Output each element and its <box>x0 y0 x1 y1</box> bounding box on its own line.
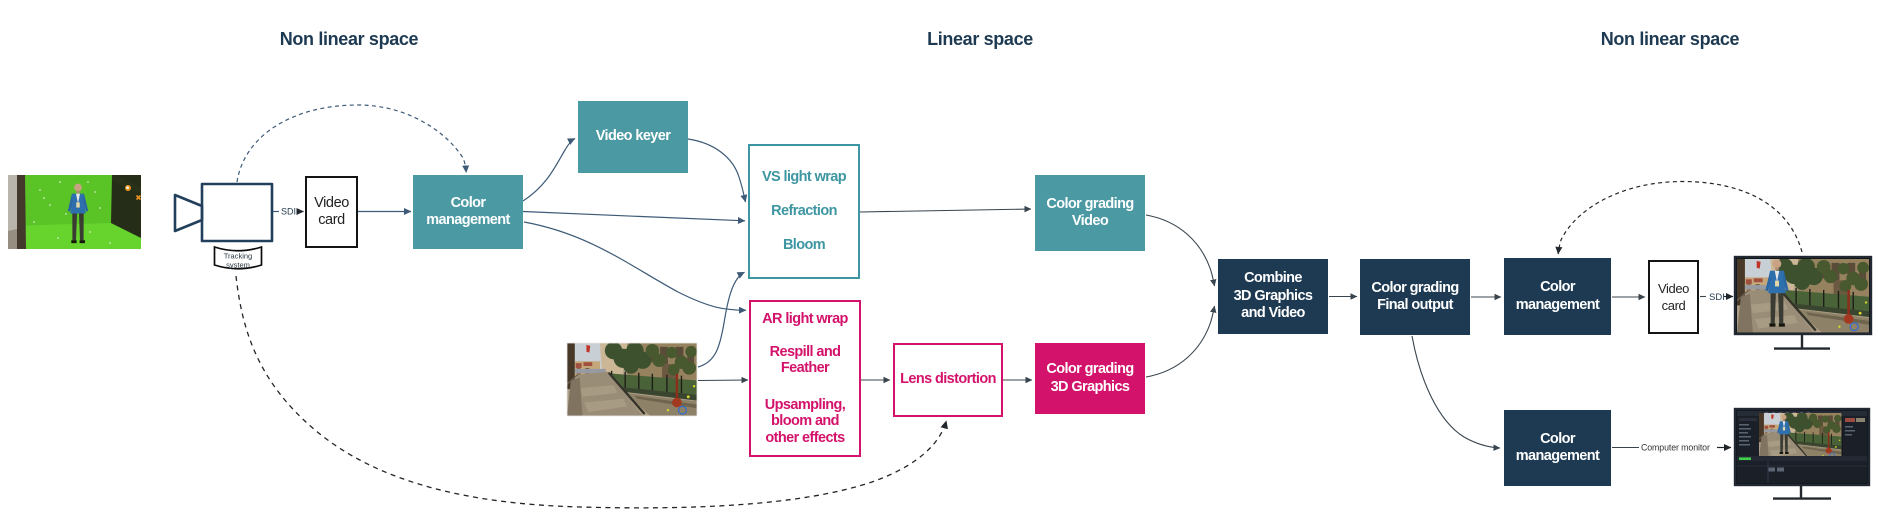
svg-text:Tracking: Tracking <box>224 252 252 261</box>
svg-text:SDI: SDI <box>281 207 296 217</box>
svg-text:SDI: SDI <box>1709 292 1725 303</box>
svg-text:Computer monitor: Computer monitor <box>1641 443 1710 453</box>
svg-text:system: system <box>226 261 250 270</box>
